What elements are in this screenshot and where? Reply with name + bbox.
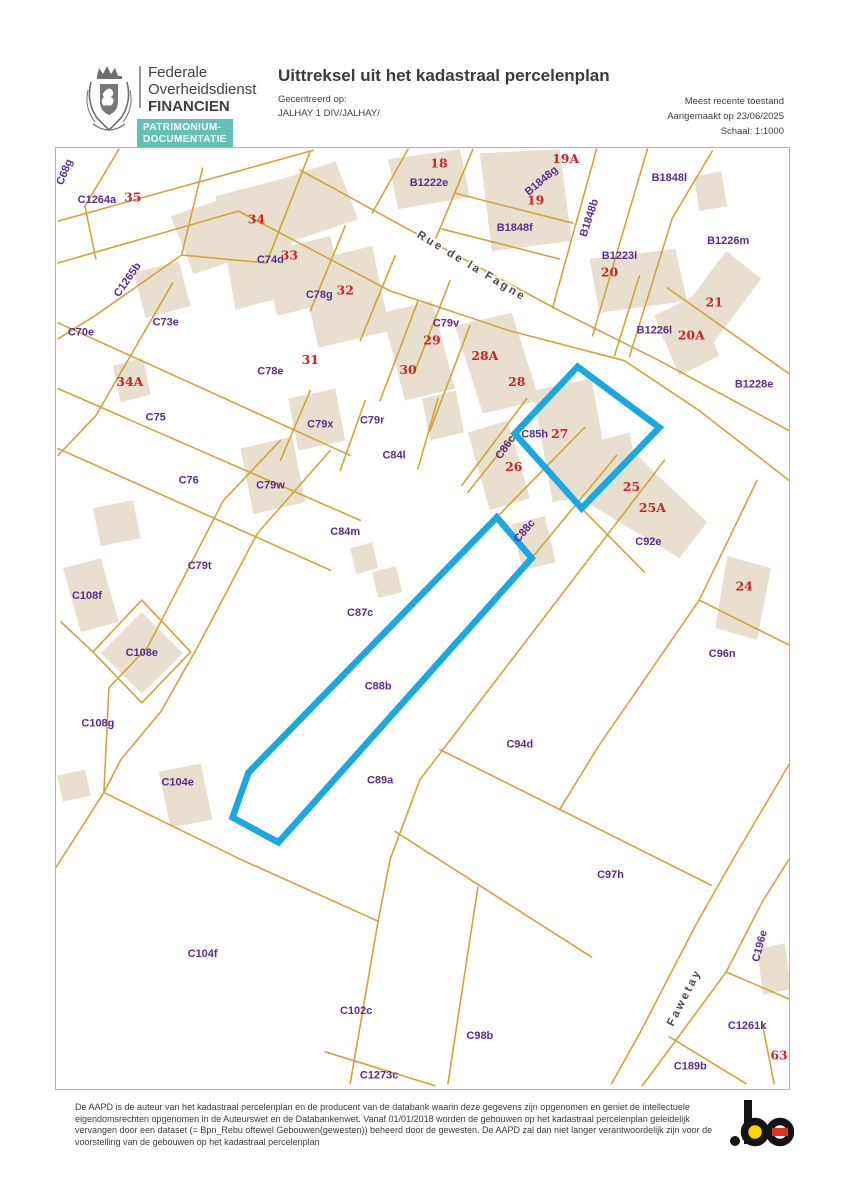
parcel-boundary (440, 750, 711, 886)
parcel-label: C1264a (78, 194, 117, 206)
house-number: 30 (399, 362, 417, 377)
parcel-label: C78g (306, 289, 333, 301)
parcel-boundary (611, 765, 789, 1084)
patrimonium-badge: PATRIMONIUM- DOCUMENTATIE (137, 119, 233, 149)
page-title: Uittreksel uit het kadastraal percelenpl… (278, 66, 610, 86)
cadastral-map: Rue de la FagneFawetayC68gC1264aC1265bC7… (55, 147, 790, 1090)
badge-line1: PATRIMONIUM- (143, 122, 227, 134)
parcel-label: B1228e (735, 379, 773, 391)
parcel-label: B1223l (602, 250, 637, 262)
house-number: 19A (552, 151, 579, 166)
parcel-label: B1226m (707, 235, 749, 247)
parcel-label: B1222e (410, 177, 448, 189)
house-number: 33 (281, 247, 298, 262)
house-number: 20A (678, 327, 705, 342)
page: Federale Overheidsdienst FINANCIEN PATRI… (0, 0, 842, 1200)
house-number: 26 (505, 459, 522, 474)
house-number: 25 (623, 479, 640, 494)
house-number: 32 (337, 282, 354, 297)
building (715, 556, 771, 640)
map-svg: Rue de la FagneFawetayC68gC1264aC1265bC7… (56, 148, 789, 1089)
parcel-label: C189b (674, 1061, 707, 1073)
parcel-label: C102c (340, 1005, 372, 1017)
parcel-label: C79t (188, 560, 212, 572)
parcel-label: C85h (521, 428, 548, 440)
badge-line2: DOCUMENTATIE (143, 134, 227, 146)
parcel-label: C108e (126, 647, 158, 659)
document-header: Federale Overheidsdienst FINANCIEN PATRI… (0, 0, 842, 147)
parcel-label: C1261k (728, 1020, 767, 1032)
parcel-label: C89a (367, 774, 394, 786)
house-number: 31 (302, 352, 319, 367)
belgian-coat-of-arms-logo (83, 60, 135, 138)
parcel-label: C97h (597, 869, 624, 881)
house-number: 18 (430, 156, 447, 171)
house-number: 63 (770, 1047, 787, 1062)
house-number: 19 (527, 193, 544, 208)
parcel-label: C73e (153, 317, 179, 329)
org-line2: Overheidsdienst (148, 81, 256, 98)
house-number: 28A (471, 348, 498, 363)
org-line3: FINANCIEN (148, 98, 256, 115)
building (382, 301, 455, 401)
parcel-boundary (448, 887, 478, 1083)
building (57, 770, 91, 802)
parcel-label: C84l (382, 449, 405, 461)
be-logo (728, 1096, 794, 1152)
parcel-label: C92e (635, 536, 661, 548)
parcel-label: C79v (433, 318, 460, 330)
parcel-label: C104f (188, 948, 218, 960)
house-number: 27 (551, 426, 568, 441)
meta-created: Aangemaakt op 23/06/2025 (667, 109, 784, 124)
parcel-boundary (395, 831, 591, 957)
parcel-label: B1848f (497, 222, 533, 234)
parcel-label: C75 (146, 411, 166, 423)
parcel-label: C84m (330, 526, 360, 538)
house-number: 35 (124, 190, 141, 205)
house-number: 25A (639, 500, 666, 515)
parcel-label: C79w (256, 479, 285, 491)
house-number: 21 (706, 294, 723, 309)
street-name: Fawetay (665, 967, 704, 1028)
building (372, 566, 402, 598)
meta-status: Meest recente toestand (667, 94, 784, 109)
parcel-label: C96n (709, 648, 736, 660)
org-line1: Federale (148, 64, 256, 81)
disclaimer-text: De AAPD is de auteur van het kadastraal … (75, 1102, 723, 1148)
parcel-label: C108f (72, 590, 102, 602)
parcel-label: C68g (56, 157, 75, 186)
building (159, 764, 213, 828)
parcel-label: C104e (162, 776, 194, 788)
parcel-boundary (104, 793, 378, 922)
parcel-label: C1273c (360, 1070, 398, 1082)
house-number: 34A (116, 374, 143, 389)
parcel-label: C98b (466, 1030, 493, 1042)
parcel-label: C78e (257, 366, 283, 378)
parcel-boundary (58, 323, 350, 456)
parcel-label: B1848l (652, 172, 687, 184)
org-name: Federale Overheidsdienst FINANCIEN (148, 64, 256, 115)
house-number: 34 (248, 212, 266, 227)
parcel-label: C76 (179, 474, 199, 486)
parcel-label: C94d (506, 739, 533, 751)
map-meta: Meest recente toestand Aangemaakt op 23/… (667, 94, 784, 139)
parcel-label: C108g (81, 718, 114, 730)
house-number: 20 (601, 264, 619, 279)
parcel-boundary (56, 793, 104, 868)
building (694, 171, 727, 211)
parcel-boundary (350, 460, 664, 1083)
meta-scale: Schaal: 1:1000 (667, 124, 784, 139)
centered-on-label: Gecentreerd op: (278, 94, 347, 105)
centered-on-value: JALHAY 1 DIV/JALHAY/ (278, 108, 380, 119)
header-divider (139, 66, 141, 108)
house-number: 28 (508, 374, 525, 389)
parcel-label: B1226l (637, 325, 672, 337)
parcel-label: C88b (365, 681, 392, 693)
parcel-label: C79x (307, 418, 334, 430)
parcel-label: C70e (68, 327, 94, 339)
building (350, 542, 378, 574)
building (93, 500, 141, 546)
parcel-label: C79r (360, 414, 385, 426)
house-number: 24 (735, 579, 753, 594)
parcel-label: C87c (347, 607, 373, 619)
house-number: 29 (423, 332, 440, 347)
